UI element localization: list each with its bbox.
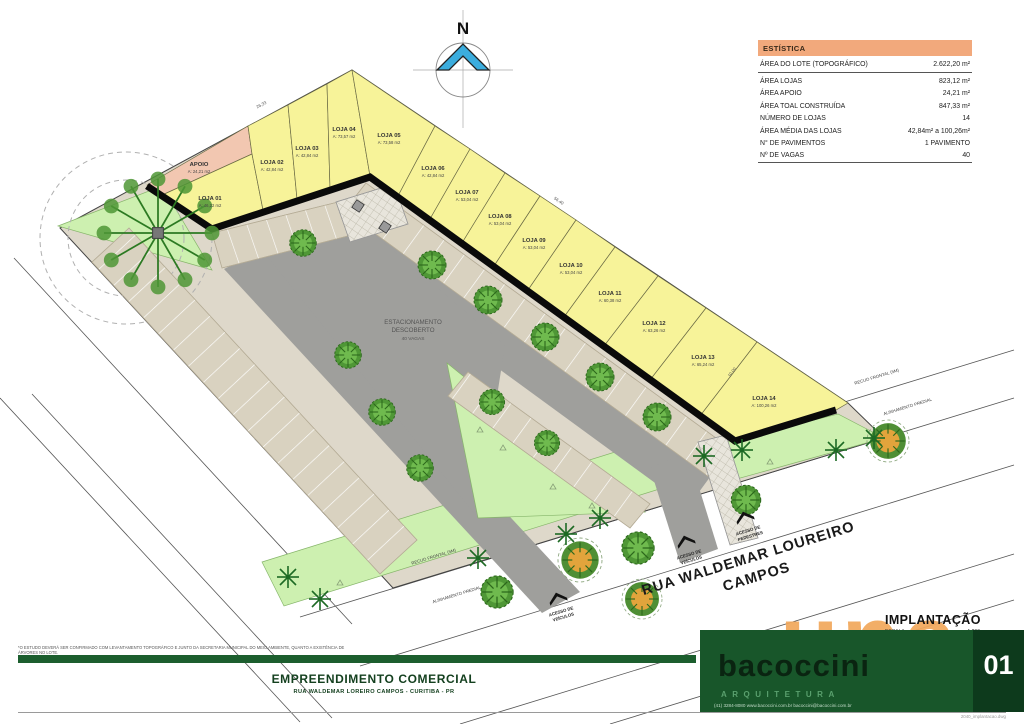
svg-text:26,33: 26,33 — [255, 100, 267, 110]
titleblock-bar — [18, 655, 696, 663]
svg-text:ACESSO DE VEÍCULOS: ACESSO DE VEÍCULOS — [548, 605, 577, 623]
svg-text:A: 53,04 m2: A: 53,04 m2 — [456, 197, 479, 202]
palm-icon — [825, 439, 847, 461]
svg-text:RECUO FRONTAL (5M): RECUO FRONTAL (5M) — [854, 367, 900, 385]
svg-text:LOJA 14: LOJA 14 — [752, 396, 776, 402]
svg-text:LOJA 13: LOJA 13 — [691, 355, 715, 361]
svg-text:A: 63,26 m2: A: 63,26 m2 — [643, 328, 666, 333]
sheet-number: 01 — [973, 650, 1024, 681]
svg-text:A: 100,26 m2: A: 100,26 m2 — [752, 403, 778, 408]
project-title: EMPREENDIMENTO COMERCIAL — [40, 672, 708, 686]
street-tree-icon — [558, 538, 602, 582]
stat-row: NÚMERO DE LOJAS 14 — [758, 112, 972, 124]
architect-logo: bacoccini — [718, 650, 958, 681]
statistics-title: ESTÍSTICA — [758, 40, 972, 56]
svg-text:LOJA 07: LOJA 07 — [455, 190, 478, 196]
svg-text:A: 42,84 m2: A: 42,84 m2 — [261, 167, 284, 172]
titleblock-divider — [18, 712, 1006, 713]
svg-text:ESTACIONAMENTO: ESTACIONAMENTO — [384, 319, 442, 326]
palm-icon — [309, 588, 331, 610]
svg-text:A: 42,84 m2: A: 42,84 m2 — [422, 173, 445, 178]
tree-icon — [369, 399, 396, 426]
tree-icon — [731, 485, 760, 514]
stat-row: N° DE PAVIMENTOS 1 PAVIMENTO — [758, 137, 972, 149]
svg-text:APOIO: APOIO — [190, 162, 209, 168]
svg-text:ALINHAMENTO PREDIAL: ALINHAMENTO PREDIAL — [432, 585, 482, 605]
file-label: 2040_implantacao.dwg — [880, 714, 1006, 719]
svg-text:A: 53,04 m2: A: 53,04 m2 — [560, 270, 583, 275]
svg-text:40 VAGAS: 40 VAGAS — [402, 336, 425, 342]
svg-text:LOJA 02: LOJA 02 — [260, 160, 283, 166]
north-label: N — [457, 19, 469, 38]
project-address: RUA WALDEMAR LOREIRO CAMPOS - CURITIBA -… — [40, 689, 708, 695]
project-title-block: EMPREENDIMENTO COMERCIAL RUA WALDEMAR LO… — [40, 672, 708, 695]
tree-icon — [531, 323, 559, 351]
svg-text:LOJA 09: LOJA 09 — [522, 238, 546, 244]
drawing-title: IMPLANTAÇÃO — [885, 613, 1015, 627]
svg-text:A: 24,21 m2: A: 24,21 m2 — [188, 169, 211, 174]
stat-row: ÁREA TOAL CONSTRUÍDA 847,33 m² — [758, 100, 972, 112]
svg-text:A: 73,57 m2: A: 73,57 m2 — [333, 134, 356, 139]
svg-text:DESCOBERTO: DESCOBERTO — [391, 327, 434, 334]
north-arrow: N — [413, 10, 513, 128]
tree-icon — [474, 286, 502, 314]
palm-icon — [277, 566, 299, 588]
svg-text:LOJA 06: LOJA 06 — [421, 166, 445, 172]
svg-text:A: 53,04 m2: A: 53,04 m2 — [523, 245, 546, 250]
palm-icon — [555, 523, 577, 545]
svg-text:A: 53,04 m2: A: 53,04 m2 — [489, 221, 512, 226]
svg-text:LOJA 01: LOJA 01 — [198, 196, 222, 202]
tree-icon — [479, 389, 504, 414]
stat-row: ÁREA APOIO 24,21 m² — [758, 87, 972, 99]
palm-icon — [863, 427, 885, 449]
palm-icon — [589, 507, 611, 529]
stat-row: ÁREA LOJAS 823,12 m² — [758, 75, 972, 87]
svg-text:LOJA 08: LOJA 08 — [488, 214, 512, 220]
svg-text:LOJA 12: LOJA 12 — [642, 321, 665, 327]
svg-text:A: 73,58 m2: A: 73,58 m2 — [378, 140, 401, 145]
stat-row: Nº DE VAGAS 40 — [758, 149, 972, 162]
architect-logo-sub: ARQUITETURA — [721, 690, 961, 699]
svg-text:LOJA 10: LOJA 10 — [559, 263, 582, 269]
svg-text:LOJA 04: LOJA 04 — [332, 127, 356, 133]
tree-icon — [643, 403, 671, 431]
svg-text:LOJA 05: LOJA 05 — [377, 133, 401, 139]
tree-icon — [335, 342, 362, 369]
tree-icon — [290, 230, 317, 257]
tree-icon — [418, 251, 446, 279]
svg-text:A: 46,22 m2: A: 46,22 m2 — [199, 203, 222, 208]
tree-icon — [586, 363, 614, 391]
palm-icon — [693, 445, 715, 467]
palm-icon — [731, 439, 753, 461]
svg-text:A: 42,84 m2: A: 42,84 m2 — [296, 153, 319, 158]
svg-text:A: 65,24 m2: A: 65,24 m2 — [692, 362, 715, 367]
tree-icon — [534, 430, 559, 455]
svg-text:LOJA 11: LOJA 11 — [599, 291, 623, 297]
statistics-panel: ESTÍSTICA ÁREA DO LOTE (TOPOGRÁFICO) 2.6… — [758, 40, 972, 163]
svg-text:56,40: 56,40 — [553, 196, 565, 206]
palm-icon — [467, 547, 489, 569]
site-plan-sheet: N APOIO LOJA 01 LOJA 02 LOJA 03 LOJA 04 … — [0, 0, 1024, 724]
stat-row: ÁREA DO LOTE (TOPOGRÁFICO) 2.622,20 m² — [758, 56, 972, 73]
stat-row: ÁREA MÉDIA DAS LOJAS 42,84m² a 100,26m² — [758, 125, 972, 137]
svg-text:ALINHAMENTO PREDIAL: ALINHAMENTO PREDIAL — [883, 397, 933, 417]
tree-icon — [407, 455, 434, 482]
tree-icon — [481, 576, 513, 608]
architect-contact: (41) 3284-8080 www.bacoccini.com.br baco… — [714, 703, 964, 708]
svg-text:LOJA 03: LOJA 03 — [295, 146, 319, 152]
tree-icon — [622, 532, 654, 564]
svg-text:A: 60,38 m2: A: 60,38 m2 — [599, 298, 622, 303]
